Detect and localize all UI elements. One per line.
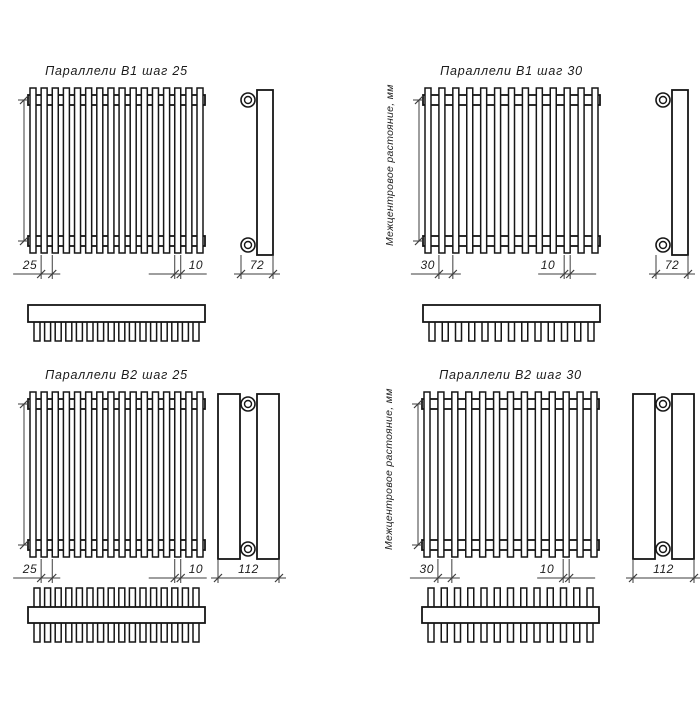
- depth-dimension-label: 112: [653, 562, 674, 576]
- tube: [52, 392, 58, 557]
- tooth: [575, 321, 581, 341]
- tube: [467, 88, 473, 253]
- tooth: [548, 321, 554, 341]
- tube: [152, 392, 158, 557]
- panel-b1-step30: Параллели В1 шаг 30 Межцентровое растоян…: [350, 48, 700, 398]
- tooth: [535, 321, 541, 341]
- radiator-views-svg: 2510112: [0, 352, 350, 702]
- tooth: [509, 321, 515, 341]
- tooth: [561, 588, 567, 608]
- tooth: [98, 622, 104, 642]
- tooth: [468, 588, 474, 608]
- tooth: [172, 321, 178, 341]
- tooth: [468, 622, 474, 642]
- tooth: [547, 622, 553, 642]
- step-dimension: 30: [411, 255, 461, 279]
- top-view: [28, 305, 205, 341]
- radiator-views-svg: 251072: [0, 48, 350, 398]
- tube: [438, 392, 444, 557]
- tooth: [151, 321, 157, 341]
- tooth: [98, 588, 104, 608]
- tooth: [129, 321, 135, 341]
- tube: [197, 392, 203, 557]
- tube-width-label: 10: [189, 562, 203, 576]
- tube: [75, 88, 81, 253]
- tube: [141, 392, 147, 557]
- tooth: [55, 588, 61, 608]
- tube-width-label: 10: [540, 562, 554, 576]
- front-view: [422, 392, 599, 557]
- step-dimension-label: 25: [22, 258, 37, 272]
- tooth: [129, 622, 135, 642]
- tooth: [76, 622, 82, 642]
- tube: [86, 88, 92, 253]
- comb-bar: [28, 305, 205, 322]
- tooth: [587, 588, 593, 608]
- tooth: [161, 622, 167, 642]
- tube: [130, 392, 136, 557]
- tube-width-dimension: 10: [149, 559, 207, 583]
- tooth: [441, 622, 447, 642]
- tooth: [521, 622, 527, 642]
- tooth: [140, 321, 146, 341]
- tube: [494, 392, 500, 557]
- tube: [425, 88, 431, 253]
- center-distance-dimension: [18, 96, 29, 245]
- tooth: [481, 588, 487, 608]
- tooth: [76, 321, 82, 341]
- step-dimension: 25: [13, 255, 60, 279]
- tube: [563, 392, 569, 557]
- tube: [175, 392, 181, 557]
- tube-width-dimension: 10: [149, 255, 207, 279]
- tube: [509, 88, 515, 253]
- side-view: [218, 394, 279, 559]
- tooth: [482, 321, 488, 341]
- tooth: [34, 622, 40, 642]
- tube: [63, 88, 69, 253]
- top-view: [423, 305, 600, 341]
- tube: [521, 392, 527, 557]
- tooth: [587, 622, 593, 642]
- tube: [536, 88, 542, 253]
- side-column-back: [257, 394, 279, 559]
- tooth: [172, 588, 178, 608]
- step-dimension: 30: [410, 559, 460, 583]
- tooth: [140, 588, 146, 608]
- depth-dimension: 72: [234, 255, 280, 279]
- tube: [481, 88, 487, 253]
- tube: [578, 88, 584, 253]
- tooth: [193, 622, 199, 642]
- tube: [592, 88, 598, 253]
- tooth: [193, 588, 199, 608]
- side-column: [672, 90, 688, 255]
- pipe-bore-icon: [660, 242, 667, 249]
- comb-bar: [422, 607, 599, 623]
- tube: [186, 392, 192, 557]
- tooth: [140, 622, 146, 642]
- tube-width-dimension: 10: [538, 255, 596, 279]
- tooth: [441, 588, 447, 608]
- front-view: [423, 88, 600, 253]
- tooth: [45, 622, 51, 642]
- side-column-front: [218, 394, 240, 559]
- tube: [119, 392, 125, 557]
- tooth: [574, 588, 580, 608]
- pipe-bore-icon: [660, 401, 667, 408]
- tube-width-dimension: 10: [537, 559, 595, 583]
- tooth: [547, 588, 553, 608]
- side-view: [656, 90, 688, 255]
- step-dimension: 25: [13, 559, 60, 583]
- tooth: [66, 321, 72, 341]
- top-view: [422, 588, 599, 642]
- tube: [41, 392, 47, 557]
- tooth: [45, 321, 51, 341]
- tooth: [469, 321, 475, 341]
- tooth: [76, 588, 82, 608]
- tooth: [455, 622, 461, 642]
- tooth: [481, 622, 487, 642]
- tooth: [172, 622, 178, 642]
- tube: [186, 88, 192, 253]
- tube: [97, 392, 103, 557]
- tooth: [495, 321, 501, 341]
- tooth: [87, 588, 93, 608]
- tube: [452, 392, 458, 557]
- tooth: [55, 321, 61, 341]
- tube: [30, 392, 36, 557]
- tube: [119, 88, 125, 253]
- tooth: [182, 588, 188, 608]
- tube: [41, 88, 47, 253]
- tooth: [428, 588, 434, 608]
- tooth: [119, 588, 125, 608]
- center-distance-dimension: [413, 96, 424, 245]
- tooth: [442, 321, 448, 341]
- tooth: [428, 622, 434, 642]
- tooth: [574, 622, 580, 642]
- depth-dimension-label: 72: [665, 258, 679, 272]
- tube: [564, 88, 570, 253]
- tube: [577, 392, 583, 557]
- tooth: [522, 321, 528, 341]
- tooth: [161, 588, 167, 608]
- depth-dimension: 72: [649, 255, 695, 279]
- tooth: [508, 588, 514, 608]
- tube: [175, 88, 181, 253]
- pipe-bore-icon: [660, 546, 667, 553]
- tooth: [182, 321, 188, 341]
- tube: [164, 392, 170, 557]
- tooth: [151, 622, 157, 642]
- tube: [108, 392, 114, 557]
- tube: [480, 392, 486, 557]
- pipe-bore-icon: [245, 242, 252, 249]
- tooth: [119, 321, 125, 341]
- tooth: [108, 321, 114, 341]
- pipe-bore-icon: [245, 401, 252, 408]
- step-dimension-label: 25: [22, 562, 37, 576]
- tube: [508, 392, 514, 557]
- tooth: [119, 622, 125, 642]
- side-view: [633, 394, 694, 559]
- side-column-front: [633, 394, 655, 559]
- tooth: [98, 321, 104, 341]
- pipe-bore-icon: [245, 546, 252, 553]
- side-view: [241, 90, 273, 255]
- tube: [97, 88, 103, 253]
- step-dimension-label: 30: [420, 562, 434, 576]
- tube: [197, 88, 203, 253]
- tube: [86, 392, 92, 557]
- tube: [550, 88, 556, 253]
- tooth: [562, 321, 568, 341]
- tube: [130, 88, 136, 253]
- tooth: [151, 588, 157, 608]
- tooth: [161, 321, 167, 341]
- tube: [141, 88, 147, 253]
- tooth: [193, 321, 199, 341]
- tooth: [87, 622, 93, 642]
- tube: [495, 88, 501, 253]
- center-distance-dimension: [412, 400, 423, 549]
- pipe-bore-icon: [660, 97, 667, 104]
- tube-width-label: 10: [541, 258, 555, 272]
- tube: [30, 88, 36, 253]
- tooth: [182, 622, 188, 642]
- tube: [591, 392, 597, 557]
- depth-dimension: 112: [211, 559, 286, 583]
- tube-width-label: 10: [189, 258, 203, 272]
- tooth: [108, 588, 114, 608]
- depth-dimension-label: 72: [250, 258, 264, 272]
- tooth: [34, 321, 40, 341]
- front-view: [28, 392, 205, 557]
- step-dimension-label: 30: [421, 258, 435, 272]
- tube: [549, 392, 555, 557]
- tube: [453, 88, 459, 253]
- tooth: [34, 588, 40, 608]
- tooth: [66, 622, 72, 642]
- tooth: [108, 622, 114, 642]
- tooth: [456, 321, 462, 341]
- tooth: [494, 622, 500, 642]
- center-distance-dimension: [18, 400, 29, 549]
- tooth: [45, 588, 51, 608]
- tube: [108, 88, 114, 253]
- tooth: [508, 622, 514, 642]
- depth-dimension-label: 112: [238, 562, 259, 576]
- tube: [164, 88, 170, 253]
- tooth: [521, 588, 527, 608]
- tube: [52, 88, 58, 253]
- panel-b2-step30: Параллели В2 шаг 30 Межцентровое растоян…: [350, 352, 700, 702]
- radiator-views-svg: 301072: [350, 48, 700, 398]
- comb-bar: [423, 305, 600, 322]
- tooth: [66, 588, 72, 608]
- tooth: [494, 588, 500, 608]
- top-view: [28, 588, 205, 642]
- tube: [424, 392, 430, 557]
- tooth: [87, 321, 93, 341]
- front-view: [28, 88, 205, 253]
- tube: [535, 392, 541, 557]
- tooth: [429, 321, 435, 341]
- tube: [75, 392, 81, 557]
- side-column: [257, 90, 273, 255]
- tooth: [129, 588, 135, 608]
- tube: [63, 392, 69, 557]
- tube: [466, 392, 472, 557]
- tooth: [588, 321, 594, 341]
- tube: [152, 88, 158, 253]
- tube: [439, 88, 445, 253]
- tooth: [534, 588, 540, 608]
- tooth: [455, 588, 461, 608]
- depth-dimension: 112: [626, 559, 700, 583]
- panel-b1-step25: Параллели В1 шаг 25 Межцентровое растоян…: [0, 48, 350, 398]
- tooth: [561, 622, 567, 642]
- panel-b2-step25: Параллели В2 шаг 25 Межцентровое растоян…: [0, 352, 350, 702]
- comb-bar: [28, 607, 205, 623]
- radiator-views-svg: 3010112: [350, 352, 700, 702]
- tube: [522, 88, 528, 253]
- tooth: [55, 622, 61, 642]
- drawing-canvas: Параллели В1 шаг 25 Межцентровое растоян…: [0, 0, 700, 700]
- pipe-bore-icon: [245, 97, 252, 104]
- tooth: [534, 622, 540, 642]
- side-column-back: [672, 394, 694, 559]
